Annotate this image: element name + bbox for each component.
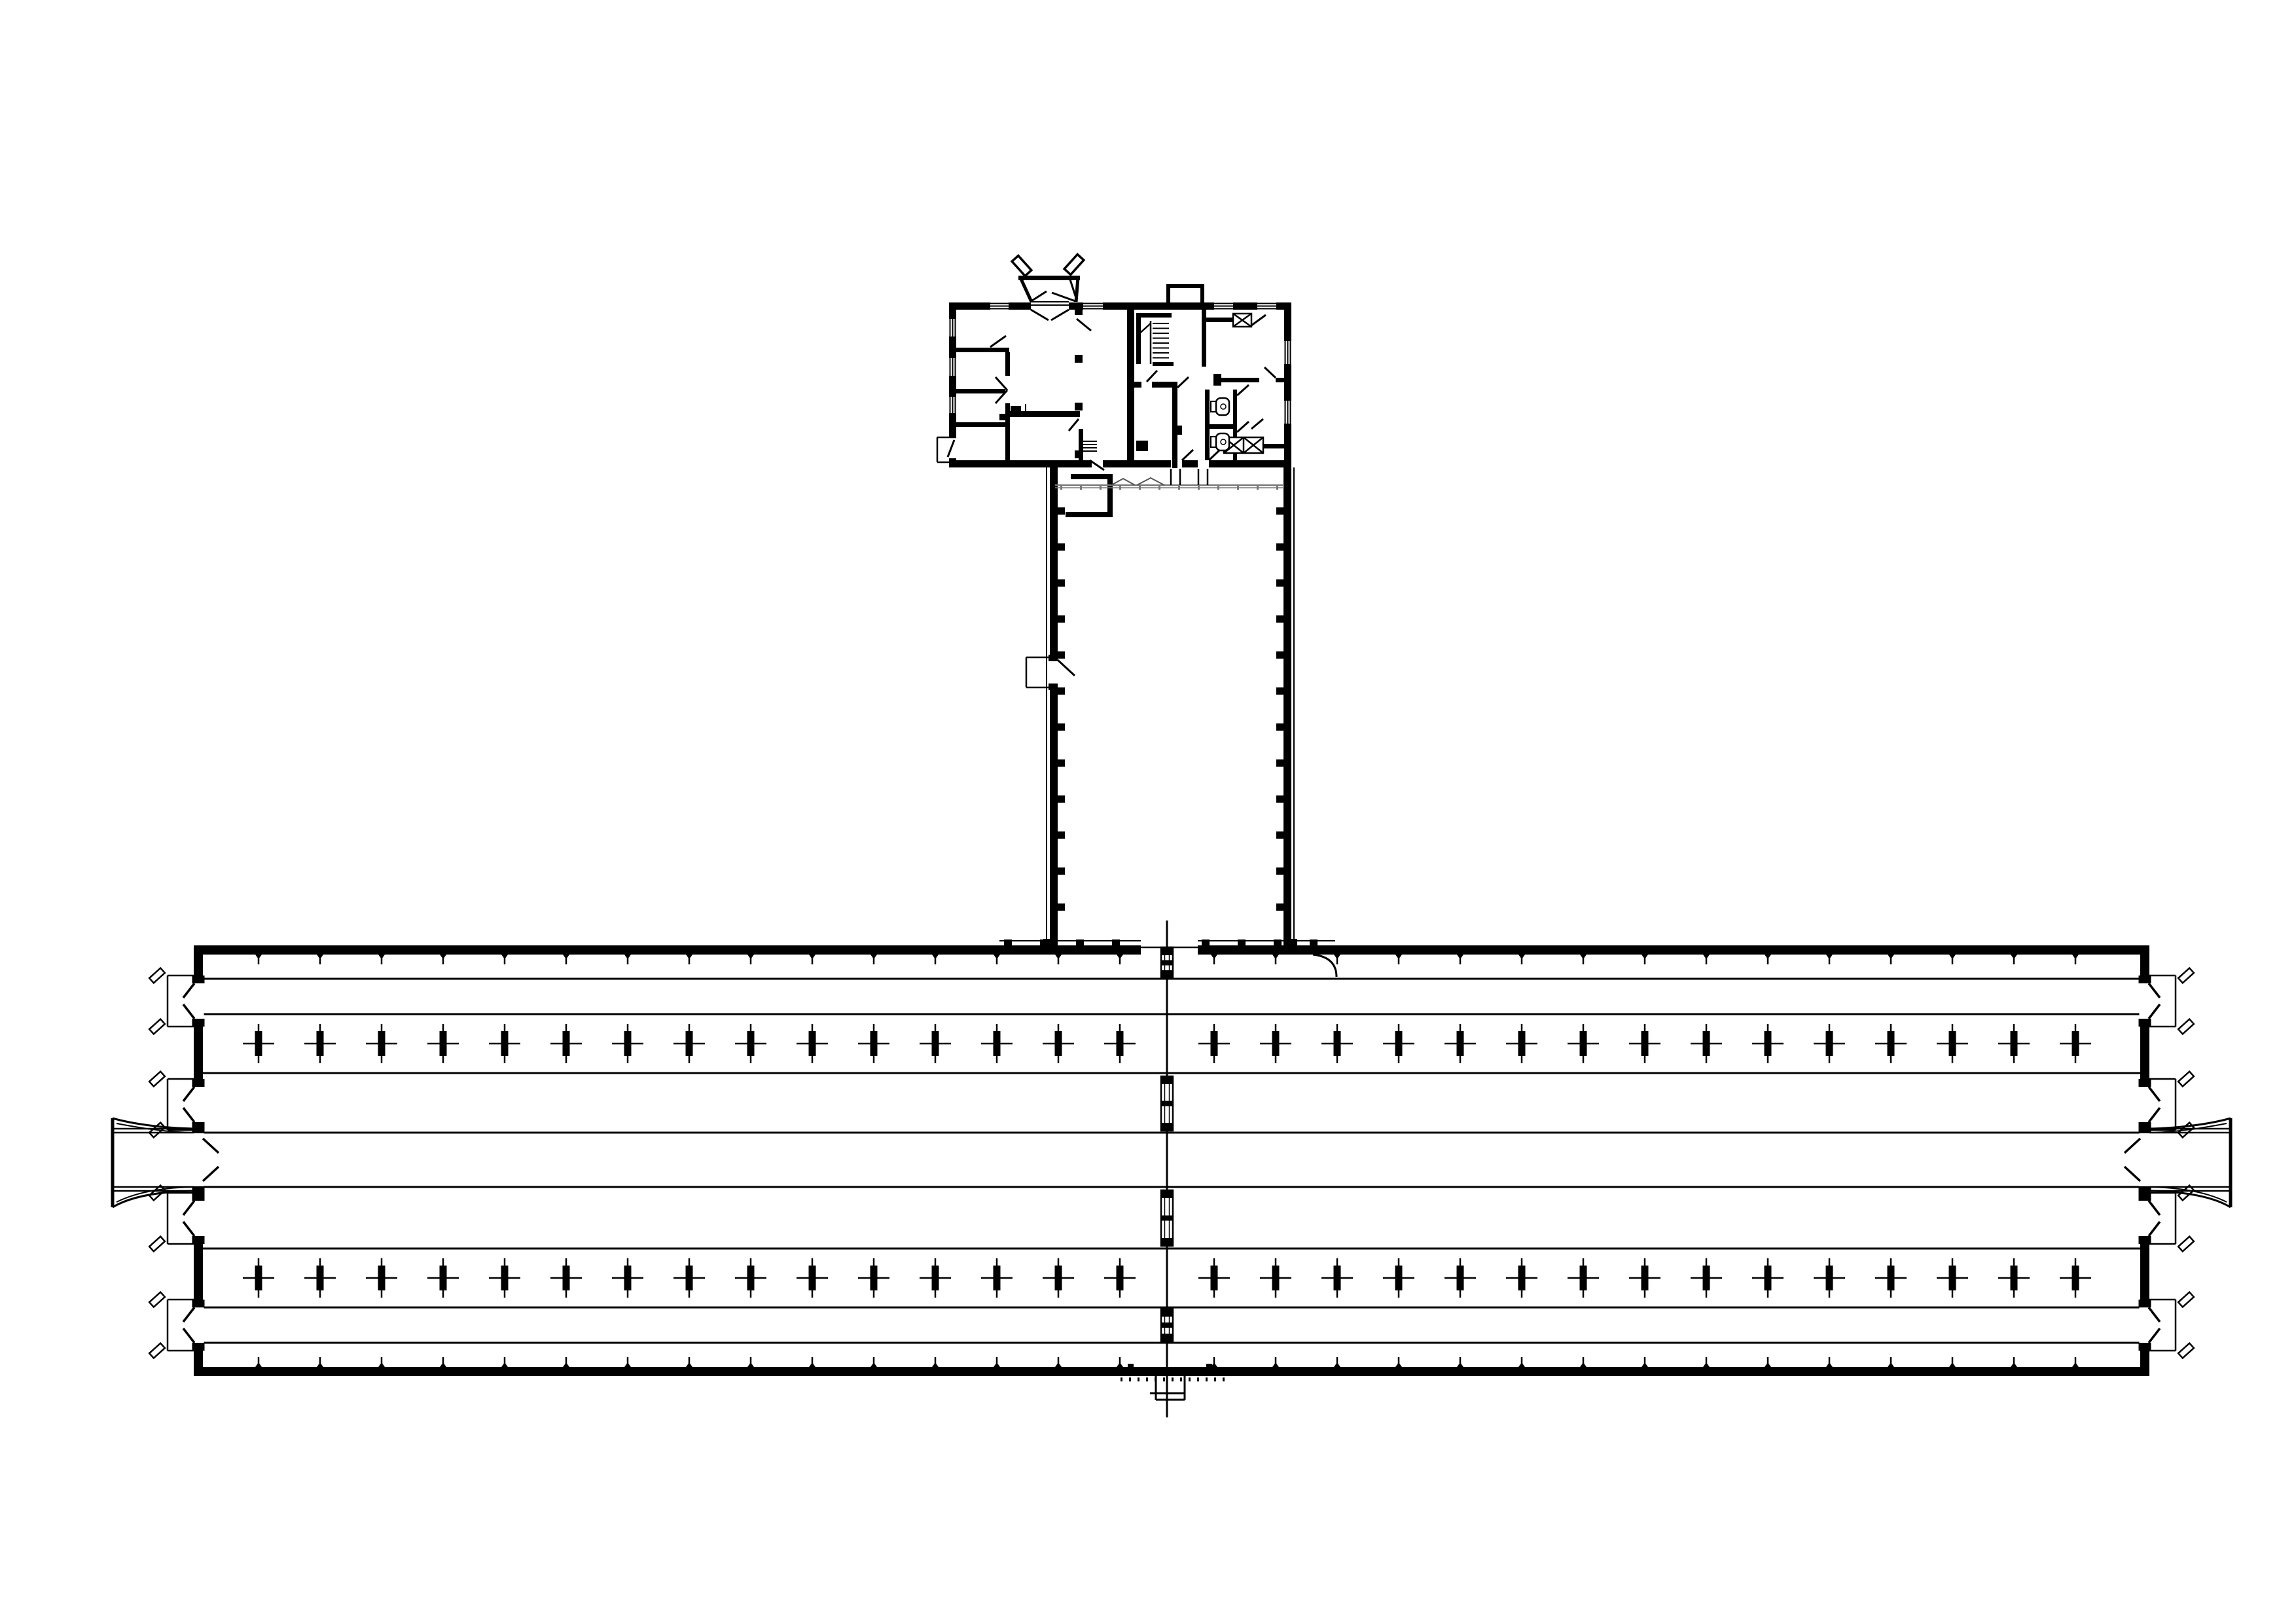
funnel-mouth: [2229, 1118, 2233, 1207]
yard-post-tick: [1276, 579, 1283, 587]
yard-interior-wall: [1071, 474, 1113, 479]
house-wall: [1136, 441, 1148, 451]
house-wall: [1205, 390, 1210, 460]
door-jamb: [2139, 1193, 2151, 1201]
door-jamb: [2139, 976, 2151, 983]
yard-post-tick: [1276, 687, 1283, 695]
door-jamb: [2139, 1127, 2151, 1133]
serration-dot: [1163, 1377, 1165, 1381]
door-jamb: [192, 976, 205, 983]
serration-dot: [1206, 1377, 1208, 1381]
serration-dot: [1146, 1377, 1148, 1381]
house-wall: [1075, 307, 1083, 315]
yard-post-tick: [1276, 651, 1283, 659]
barn-south-wall: [194, 1367, 2149, 1376]
house-wall: [949, 413, 956, 437]
house-wall: [949, 302, 956, 319]
door-jamb: [2139, 1236, 2151, 1244]
door-jamb: [2139, 1019, 2151, 1027]
cross-passage-hatch: [1161, 1309, 1173, 1341]
yard-interior-wall: [1066, 512, 1113, 517]
notch-tab: [1310, 939, 1318, 945]
house-wall: [1103, 460, 1171, 467]
yard-post-tick: [1058, 615, 1065, 623]
yard-post-tick: [1058, 507, 1065, 515]
yard-wall: [1283, 467, 1291, 945]
fence-dot: [1257, 486, 1259, 490]
door-jamb: [2139, 1186, 2151, 1193]
house-wall: [1075, 355, 1083, 363]
cross-passage-hatch: [1161, 1076, 1173, 1131]
yard-post-tick: [1276, 543, 1283, 551]
fence-dot: [1217, 486, 1219, 490]
serration-dot: [1138, 1377, 1139, 1381]
drawing-sheet: [0, 0, 2296, 1623]
notch-tab: [1238, 939, 1246, 945]
yard-post-tick: [1058, 579, 1065, 587]
yard-post-tick: [1276, 615, 1283, 623]
door-jamb: [192, 1019, 205, 1027]
house-wall: [1182, 460, 1198, 467]
house-wall: [1202, 310, 1206, 367]
barn-north-wall: [1198, 945, 2149, 955]
yard-post-tick: [1058, 543, 1065, 551]
house-wall: [1213, 374, 1221, 386]
yard-post-tick: [1276, 759, 1283, 767]
house-wall: [1011, 406, 1021, 414]
yard-wall: [1050, 685, 1058, 945]
yard-post-tick: [1276, 903, 1283, 911]
notch-tab: [1076, 939, 1084, 945]
fence-dot: [1139, 486, 1141, 490]
door-jamb: [2139, 1343, 2151, 1351]
house-wall: [1168, 382, 1177, 388]
yard-post-tick: [1276, 831, 1283, 839]
house-wall: [1009, 302, 1031, 310]
door-jamb: [2139, 1300, 2151, 1307]
house-wall: [1284, 302, 1291, 341]
fence-dot: [1237, 486, 1239, 490]
serration-dot: [1223, 1377, 1225, 1381]
serration-dot: [1172, 1377, 1174, 1381]
house-wall: [1219, 378, 1259, 382]
serration-dot: [1121, 1377, 1122, 1381]
vent-shaft-icon: [1233, 314, 1251, 327]
door-jamb: [192, 1186, 205, 1193]
door-jamb: [192, 1193, 205, 1201]
yard-post-tick: [1058, 723, 1065, 731]
serration-dot: [1180, 1377, 1182, 1381]
yard-post-tick: [1276, 723, 1283, 731]
house-wall: [1284, 424, 1291, 467]
serration-dot: [1155, 1377, 1157, 1381]
door-jamb: [1049, 684, 1058, 690]
yard-post-tick: [1276, 867, 1283, 875]
house-wall: [1133, 382, 1141, 388]
fence-dot: [1100, 486, 1102, 490]
house-wall: [956, 389, 1005, 393]
fence-dot: [1198, 486, 1200, 490]
house-wall: [1103, 302, 1214, 310]
cross-passage-hatch: [1161, 1190, 1173, 1246]
notch-tab: [1274, 939, 1282, 945]
house-wall: [1172, 433, 1177, 468]
door-jamb: [192, 1343, 205, 1351]
notch-tab: [1004, 939, 1012, 945]
yard-post-tick: [1058, 687, 1065, 695]
house-wall: [1136, 313, 1172, 318]
house-wall: [1005, 352, 1010, 376]
house-wall: [1075, 403, 1083, 410]
house-wall: [1276, 378, 1284, 382]
serration-dot: [1214, 1377, 1216, 1381]
yard-post-tick: [1058, 867, 1065, 875]
yard-wall: [1050, 467, 1058, 660]
notch-tab: [1202, 939, 1210, 945]
house-wall: [1005, 403, 1010, 460]
door-jamb: [192, 1236, 205, 1244]
door-jamb: [192, 1300, 205, 1307]
fence-dot: [1060, 486, 1062, 490]
yard-post-tick: [1058, 795, 1065, 803]
door-jamb: [1049, 655, 1058, 661]
barn-north-wall: [194, 945, 1141, 955]
yard-post-tick: [1058, 759, 1065, 767]
floor-plan: [0, 0, 2296, 1623]
house-wall: [956, 422, 1008, 427]
yard-post-tick: [1058, 831, 1065, 839]
house-wall: [949, 376, 956, 397]
funnel-mouth: [111, 1118, 115, 1207]
yard-post-tick: [1058, 651, 1065, 659]
yard-post-tick: [1276, 507, 1283, 515]
house-wall: [1206, 318, 1233, 322]
cross-passage-hatch: [1161, 947, 1173, 978]
door-jamb: [192, 1127, 205, 1133]
fence-dot: [1080, 486, 1082, 490]
house-wall: [1136, 318, 1141, 364]
door-jamb: [2139, 1079, 2151, 1087]
house-wall: [1233, 302, 1257, 310]
house-wall: [1284, 364, 1291, 401]
house-wall: [949, 337, 956, 358]
house-wall: [949, 460, 1092, 467]
house-wall: [1209, 460, 1291, 467]
serration-dot: [1129, 1377, 1131, 1381]
fence-dot: [1119, 486, 1121, 490]
yard-post-tick: [1276, 795, 1283, 803]
fence-dot: [1276, 486, 1278, 490]
fence-dot: [1158, 486, 1160, 490]
yard-post-tick: [1058, 903, 1065, 911]
house-wall: [1174, 426, 1182, 435]
house-wall: [956, 348, 1009, 352]
house-wall: [1263, 444, 1284, 448]
house-wall: [999, 414, 1006, 420]
fence-dot: [1178, 486, 1180, 490]
serration-dot: [1189, 1377, 1191, 1381]
house-wall: [1210, 424, 1237, 429]
house-wall: [1166, 284, 1204, 288]
serration-dot: [1197, 1377, 1199, 1381]
door-jamb: [192, 1079, 205, 1087]
notch-tab: [1112, 939, 1120, 945]
